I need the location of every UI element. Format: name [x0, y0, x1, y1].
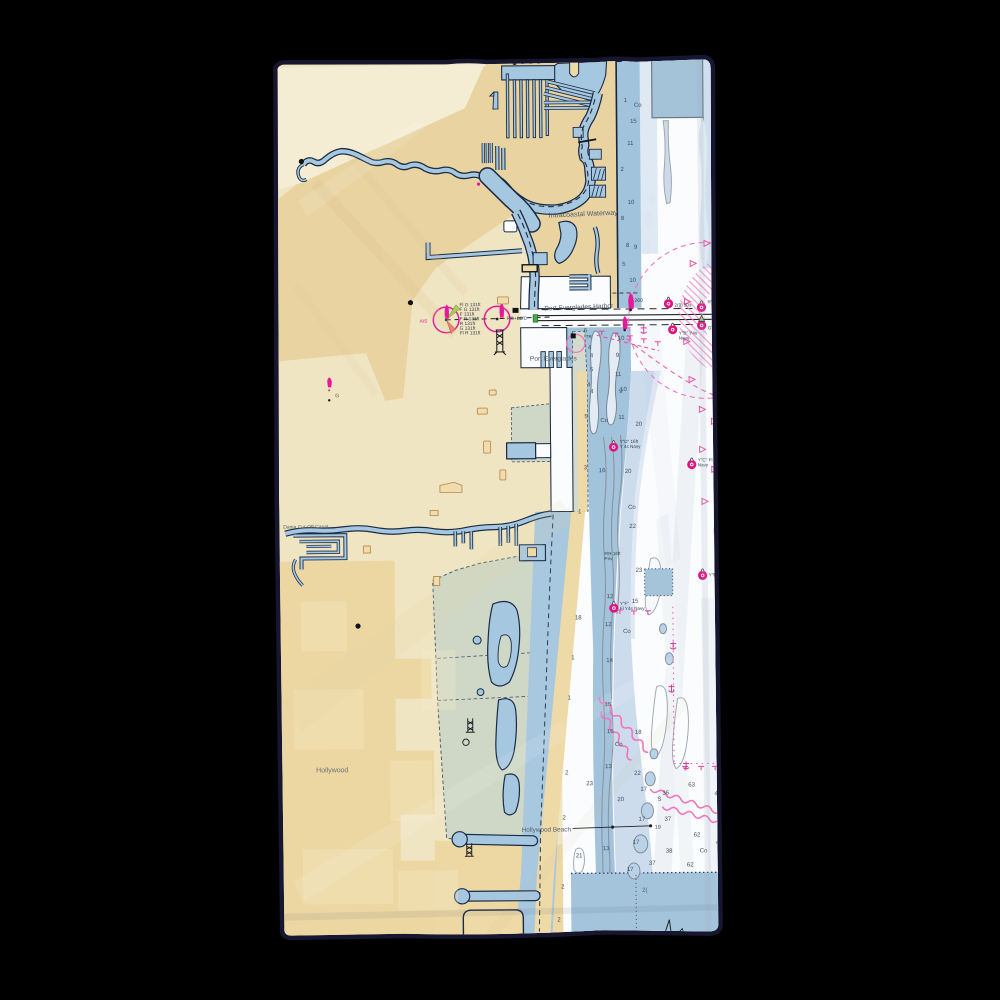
svg-text:18: 18 [635, 730, 642, 736]
svg-text:21: 21 [576, 853, 583, 859]
svg-text:2(9) 30s: 2(9) 30s [674, 302, 692, 307]
svg-text:20: 20 [625, 469, 632, 475]
svg-text:20: 20 [635, 422, 642, 428]
svg-text:15: 15 [632, 599, 639, 605]
svg-text:TR: TR [586, 334, 593, 339]
svg-text:15: 15 [630, 119, 637, 125]
svg-text:19: 19 [655, 825, 661, 831]
svg-text:AIS: AIS [420, 319, 428, 325]
svg-text:36: 36 [662, 791, 669, 797]
svg-text:12: 12 [607, 594, 614, 600]
svg-text:Co: Co [634, 103, 642, 109]
svg-text:13: 13 [603, 846, 610, 852]
svg-text:11: 11 [615, 372, 622, 378]
svg-text:17: 17 [640, 787, 647, 793]
svg-text:37: 37 [649, 861, 656, 867]
svg-text:Hollywood: Hollywood [316, 767, 348, 774]
svg-text:Co: Co [600, 418, 608, 424]
svg-text:62: 62 [687, 862, 694, 868]
svg-text:Co: Co [623, 629, 631, 635]
svg-text:10: 10 [618, 336, 625, 342]
svg-text:20: 20 [617, 797, 624, 803]
svg-text:2(: 2( [642, 888, 647, 894]
svg-text:Dania Cut-Off Canal: Dania Cut-Off Canal [283, 524, 328, 530]
svg-text:38: 38 [666, 849, 673, 855]
svg-text:S: S [657, 797, 661, 803]
svg-text:12: 12 [605, 622, 612, 628]
svg-text:17: 17 [639, 817, 646, 823]
svg-text:63: 63 [688, 782, 695, 788]
svg-text:11: 11 [618, 415, 625, 421]
svg-text:Co: Co [628, 505, 636, 511]
svg-text:Priv: Priv [604, 556, 613, 561]
svg-text:62: 62 [694, 832, 701, 838]
svg-text:FlG+B2fC: FlG+B2fC [507, 316, 528, 321]
svg-text:Hollywood Beach: Hollywood Beach [522, 826, 572, 833]
svg-text:23: 23 [636, 568, 643, 574]
svg-text:16: 16 [599, 468, 606, 474]
svg-text:15: 15 [607, 729, 614, 735]
svg-text:Y 4s Navy: Y 4s Navy [620, 444, 642, 449]
svg-text:14: 14 [606, 658, 613, 664]
svg-text:Port Everglades: Port Everglades [530, 355, 578, 362]
svg-text:37: 37 [665, 817, 672, 823]
svg-text:17: 17 [627, 867, 634, 873]
svg-text:17: 17 [633, 840, 640, 846]
svg-text:10: 10 [628, 200, 635, 206]
svg-text:23: 23 [586, 781, 593, 787]
svg-text:Fl R 131ft: Fl R 131ft [460, 330, 482, 336]
svg-text:10: 10 [629, 278, 636, 284]
svg-text:Fl Y4s Navy: Fl Y4s Navy [620, 606, 645, 611]
svg-text:Co: Co [615, 742, 623, 748]
svg-text:Navy: Navy [679, 335, 690, 340]
svg-text:22: 22 [629, 524, 636, 530]
svg-text:G: G [335, 393, 339, 399]
svg-text:260: 260 [634, 298, 643, 304]
svg-text:22: 22 [634, 771, 641, 777]
svg-text:13: 13 [605, 764, 612, 770]
svg-text:18: 18 [575, 615, 582, 621]
svg-text:11: 11 [627, 141, 634, 147]
